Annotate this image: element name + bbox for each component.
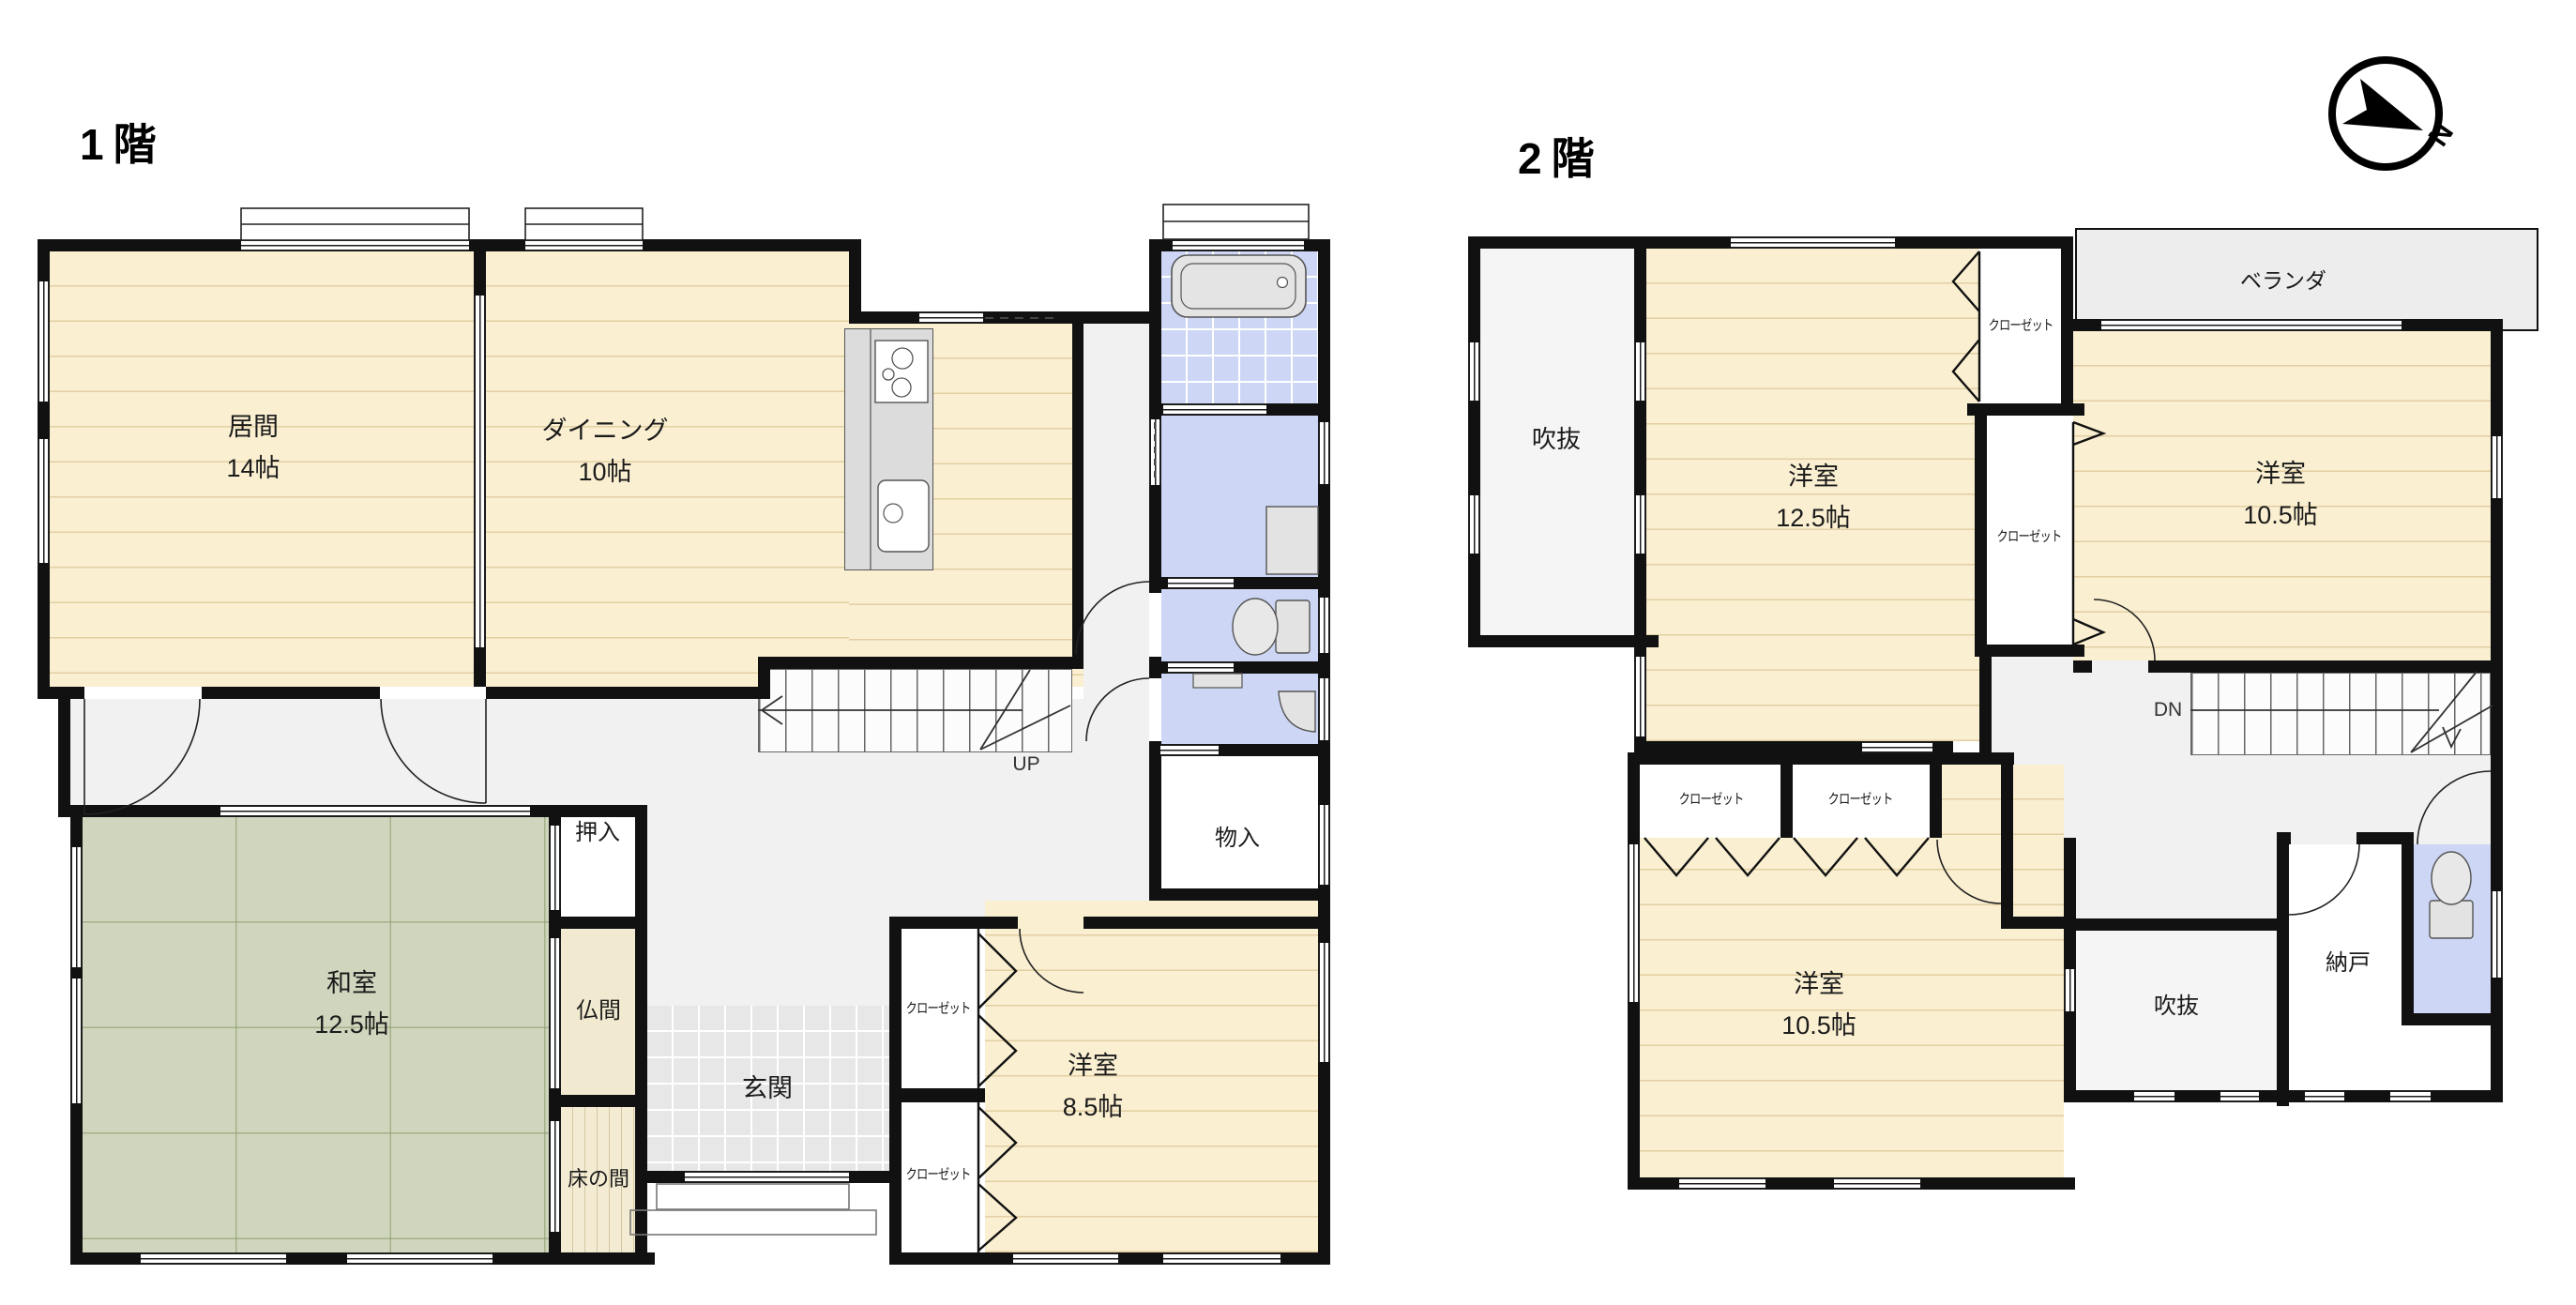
wall (486, 687, 758, 699)
wall (2402, 1013, 2503, 1025)
window (1318, 422, 1330, 484)
label-veranda: ベランダ (2240, 260, 2326, 301)
window (1318, 943, 1330, 1062)
window (1468, 342, 1480, 401)
label-tokonoma: 床の間 (568, 1159, 629, 1200)
window (2064, 969, 2076, 1011)
window (1634, 342, 1646, 401)
window (1160, 744, 1219, 756)
porch-step-2 (630, 1210, 876, 1235)
window (70, 979, 83, 1103)
floor1-title: 1階 (80, 111, 166, 173)
window (1163, 403, 1266, 416)
wall (1780, 765, 1793, 838)
wall (2491, 673, 2503, 1102)
entrance-porch-steps (630, 1184, 876, 1235)
window (141, 1252, 286, 1265)
window (1318, 598, 1330, 653)
window (241, 239, 469, 251)
wall (474, 647, 486, 687)
compass-north-label: N (2423, 117, 2460, 152)
window (1318, 678, 1330, 740)
window (549, 826, 561, 910)
window (2220, 1090, 2259, 1102)
wall (1468, 635, 1659, 647)
label-genkan: 玄関 (742, 1068, 793, 1109)
room-powder (1161, 674, 1318, 744)
label-fukinuke-bottom: 吹抜 (2154, 986, 2199, 1027)
wall (2001, 765, 2013, 838)
wall (1967, 403, 2084, 416)
bay-window-bath (1163, 205, 1309, 239)
wall (1967, 236, 2073, 249)
wall (758, 657, 770, 699)
wall (549, 1095, 647, 1107)
label-stairs-up: UP (1012, 744, 1039, 785)
window (2390, 1090, 2431, 1102)
window (2134, 1090, 2174, 1102)
wall (2073, 660, 2092, 673)
window (549, 938, 561, 1088)
window (1862, 741, 1932, 753)
wall (1979, 657, 1992, 753)
wall (202, 687, 380, 699)
room-toilet-2f (2414, 844, 2491, 1013)
hallway-2f-mid (2075, 838, 2277, 922)
label-closet-upper: クローゼット (1989, 319, 2053, 333)
wall (58, 687, 70, 817)
window (1731, 236, 1895, 249)
wall (1468, 249, 1480, 647)
compass-circle (2332, 60, 2439, 167)
window (1318, 805, 1330, 885)
label-nando: 納戸 (2326, 943, 2371, 984)
wall (1083, 917, 1330, 929)
window (1628, 844, 1640, 1002)
window (474, 296, 486, 647)
window (38, 281, 50, 402)
window (2305, 1090, 2344, 1102)
window (1173, 239, 1304, 251)
wall (635, 805, 647, 1265)
floor2-title: 2階 (1518, 125, 1604, 187)
window (1168, 661, 1234, 674)
window (70, 847, 83, 967)
window (38, 439, 50, 563)
wall (889, 917, 1018, 929)
room-toilet-1f (1161, 589, 1318, 661)
wall (1628, 752, 2014, 765)
label-fukinuke-top: 吹抜 (1532, 418, 1581, 460)
wall (2064, 918, 2289, 931)
window (549, 1121, 561, 1232)
wall (849, 311, 1149, 324)
label-monoire: 物入 (1215, 818, 1260, 859)
porch-step-1 (657, 1184, 849, 1209)
north-compass: N (2332, 60, 2460, 167)
staircase-1f (758, 669, 1072, 752)
window (2491, 891, 2503, 978)
window (1679, 1177, 1765, 1190)
wall (2356, 832, 2414, 844)
window (1163, 1252, 1280, 1265)
north-arrow-icon (2342, 79, 2423, 130)
window (525, 239, 643, 251)
window (347, 1252, 492, 1265)
window (2101, 319, 2402, 331)
label-closet1: クローゼット (906, 1002, 971, 1016)
window (1149, 419, 1161, 485)
label-living: 居間 14帖 (226, 406, 280, 489)
window (2491, 436, 2503, 498)
window (1013, 1252, 1118, 1265)
hallway-1f-entry (647, 821, 889, 1006)
label-dining: ダイニング 10帖 (542, 410, 669, 493)
label-butsuma: 仏間 (576, 991, 621, 1032)
wall (758, 657, 1083, 669)
wall (1149, 741, 1161, 901)
window (1634, 495, 1646, 554)
label-washitsu: 和室 12.5帖 (314, 963, 389, 1045)
label-yoshitsu105-top: 洋室 10.5帖 (2243, 453, 2318, 536)
label-closet-b: クローゼット (1828, 793, 1893, 807)
window (220, 805, 530, 817)
wall (1975, 416, 1987, 657)
bay-windows (241, 205, 1309, 240)
label-closet-lower: クローゼット (1997, 530, 2062, 544)
bay-window-dining (525, 208, 643, 240)
wall (1072, 324, 1083, 669)
wall (2402, 844, 2414, 1013)
wall (899, 1088, 985, 1102)
wall (1468, 236, 1659, 249)
wall (1930, 765, 1942, 838)
wall (2277, 832, 2289, 1106)
window (685, 1171, 849, 1183)
wall (2001, 838, 2013, 917)
wall (2277, 832, 2291, 844)
staircase-2f (2190, 673, 2491, 755)
window (1168, 577, 1234, 589)
wall (549, 917, 647, 929)
wall (474, 239, 486, 296)
room-yoshitsu85 (985, 901, 1318, 1252)
label-yoshitsu105-bottom: 洋室 10.5帖 (1781, 964, 1856, 1046)
label-stairs-dn: DN (2154, 690, 2182, 731)
wall (1149, 888, 1330, 901)
label-oshiire: 押入 (575, 812, 620, 854)
hallway-2f-stairs (2092, 755, 2500, 844)
kitchen-counter (844, 328, 933, 570)
label-closet-a: クローゼット (1679, 793, 1744, 807)
room-washroom (1161, 416, 1318, 577)
window (1468, 495, 1480, 554)
label-yoshitsu85: 洋室 8.5帖 (1063, 1045, 1124, 1128)
wall (2073, 319, 2101, 331)
bay-window-living (241, 208, 469, 240)
wall (2148, 660, 2503, 673)
wall (2402, 319, 2503, 331)
room-bath (1161, 251, 1318, 403)
window (1834, 1177, 1920, 1190)
wall (1975, 645, 2084, 657)
window (919, 311, 983, 324)
wall (645, 1171, 685, 1183)
label-yoshitsu125: 洋室 12.5帖 (1776, 456, 1851, 539)
label-closet2: クローゼット (906, 1168, 971, 1182)
floor-plan-canvas: 1階 2階 居間 14帖 ダイニング 10帖 和室 12.5帖 押入 仏間 床の… (0, 0, 2576, 1305)
window (1634, 657, 1646, 736)
wall (2064, 1090, 2503, 1102)
wall (2061, 236, 2073, 416)
